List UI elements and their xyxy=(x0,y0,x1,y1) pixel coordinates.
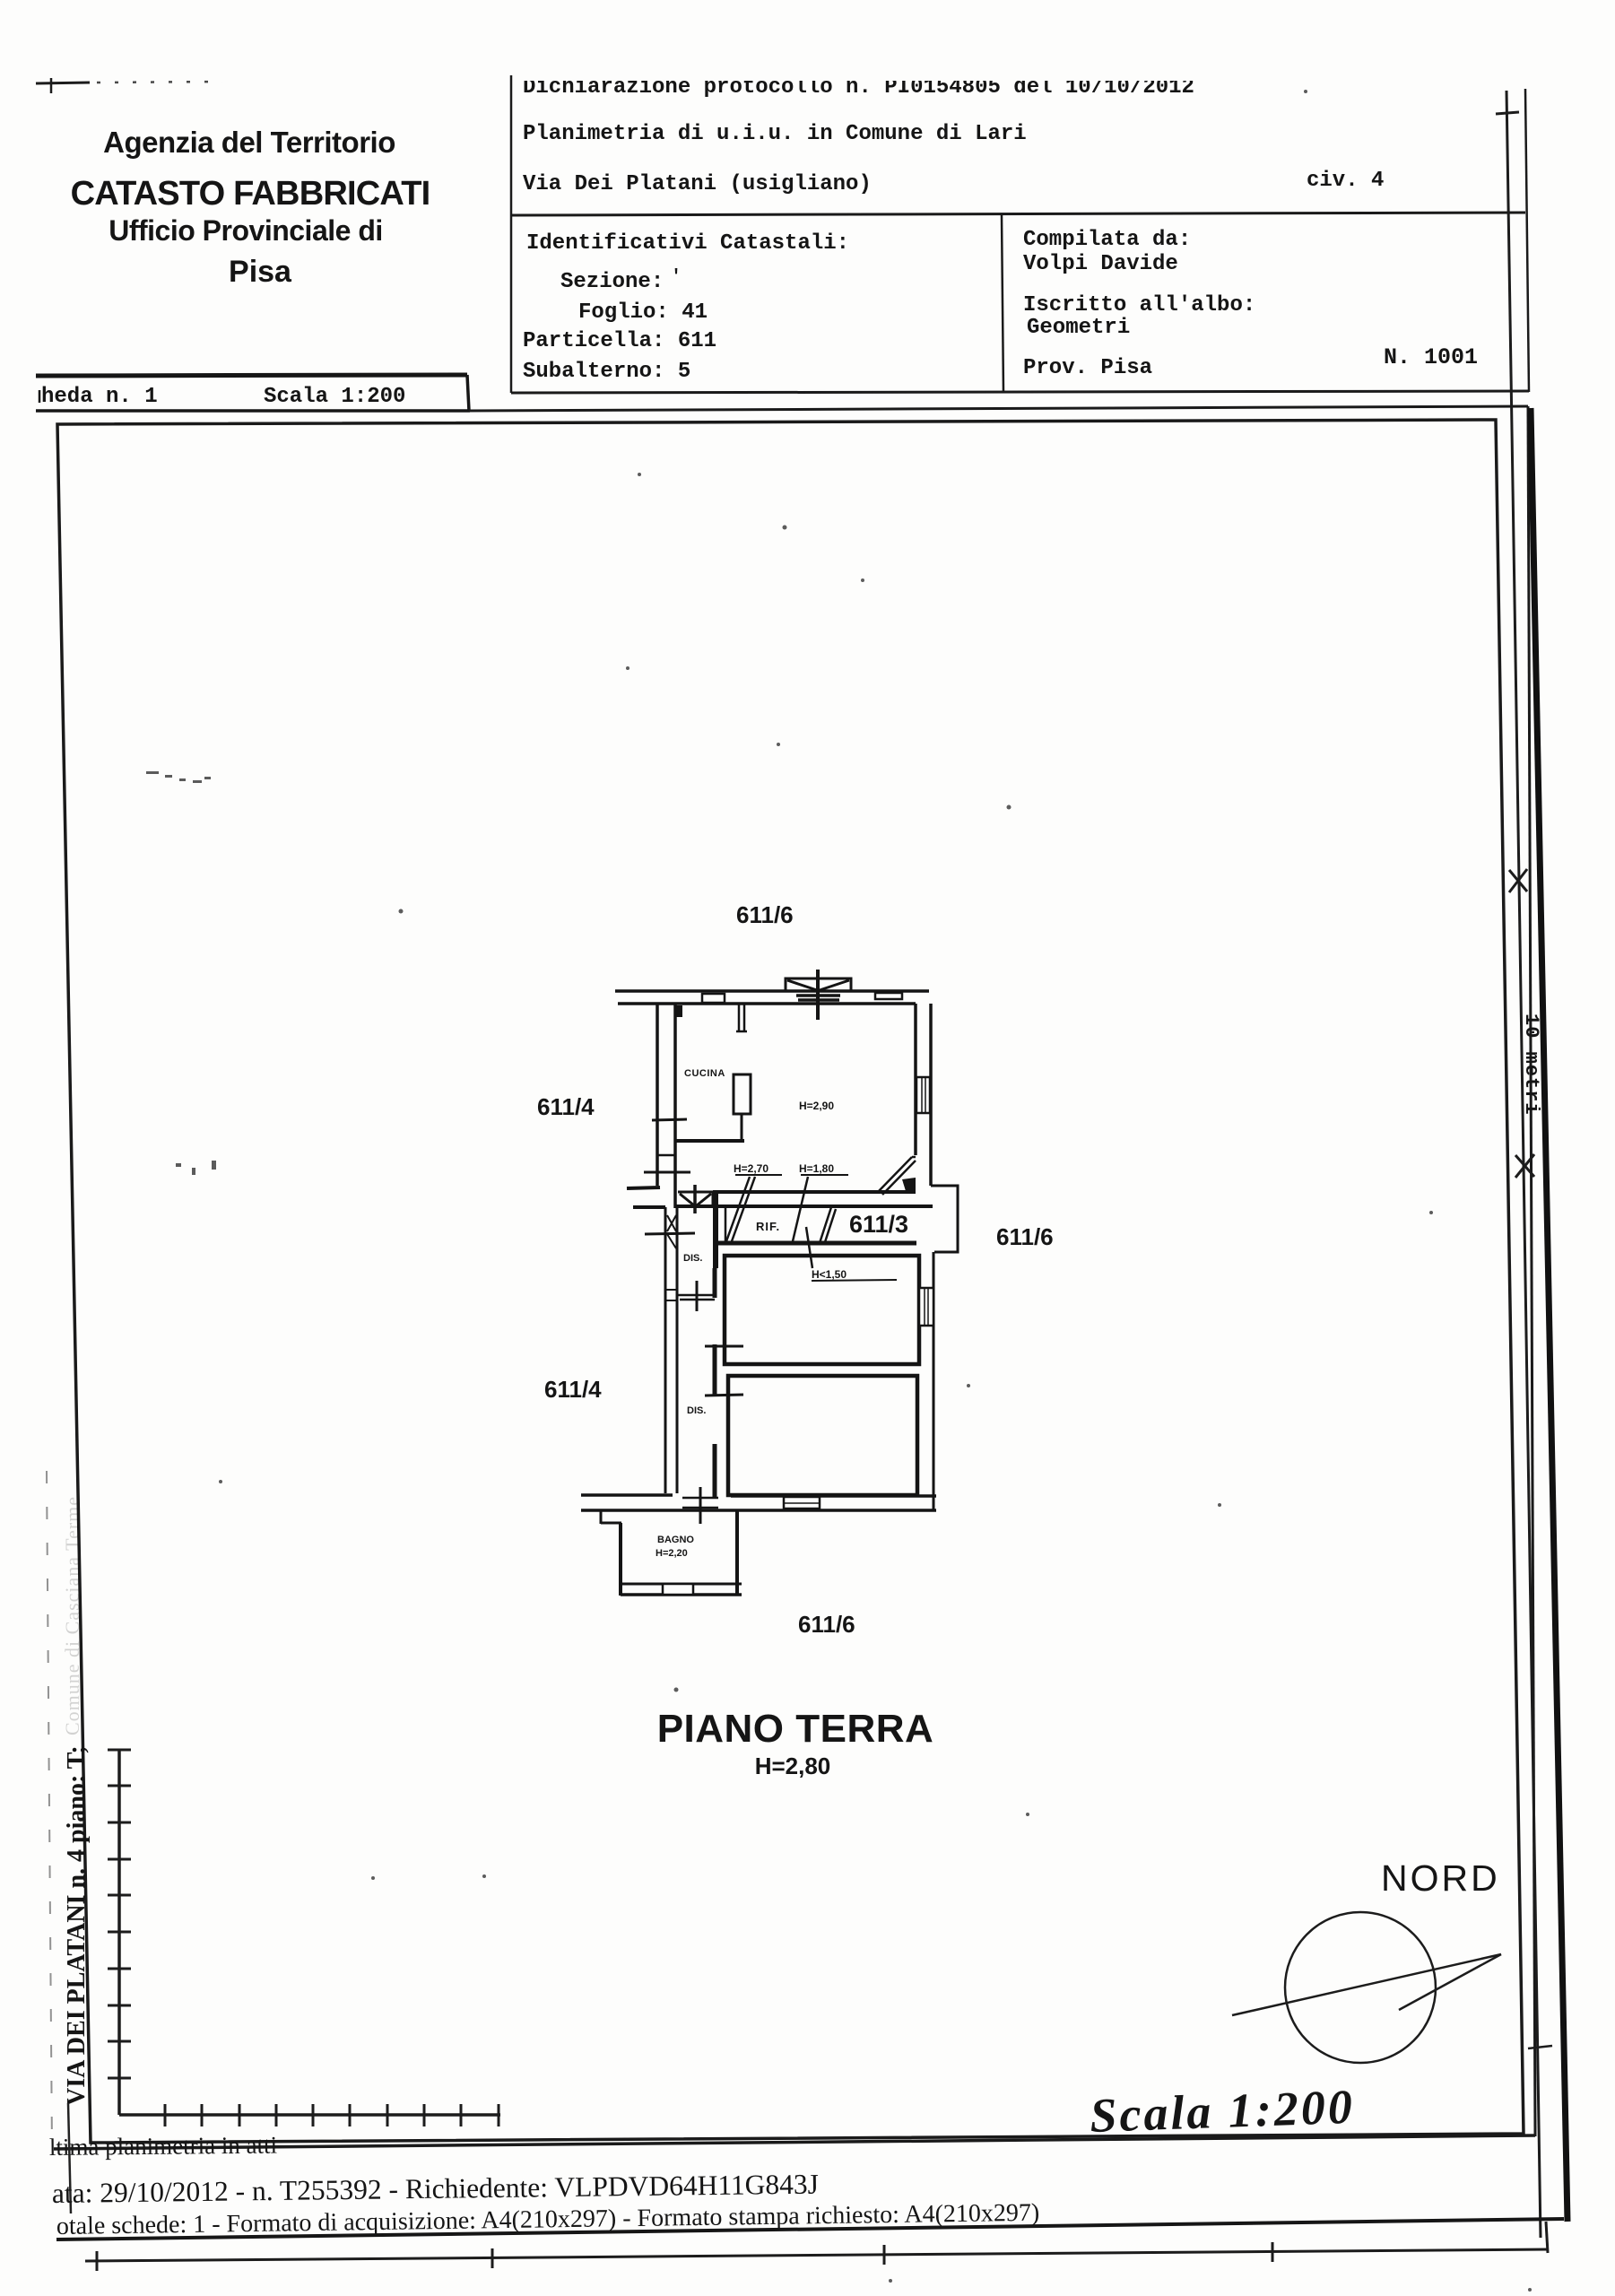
svg-text:H=1,80: H=1,80 xyxy=(799,1162,834,1175)
svg-text:RIF.: RIF. xyxy=(756,1220,780,1233)
svg-text:Particella: 611: Particella: 611 xyxy=(523,329,716,353)
svg-text:civ. 4: civ. 4 xyxy=(1307,169,1384,193)
svg-text:H=2,80: H=2,80 xyxy=(755,1752,831,1779)
svg-text:Volpi Davide: Volpi Davide xyxy=(1023,252,1178,276)
svg-text:ltima planimetria in atti: ltima planimetria in atti xyxy=(49,2132,277,2161)
svg-text:N. 1001: N. 1001 xyxy=(1384,344,1478,370)
svg-text:611/3: 611/3 xyxy=(849,1211,908,1238)
svg-text:611/6: 611/6 xyxy=(798,1611,855,1638)
svg-text:Subalterno: 5: Subalterno: 5 xyxy=(523,360,690,384)
svg-text:611/4: 611/4 xyxy=(537,1093,595,1120)
svg-text:Ufficio Provinciale di: Ufficio Provinciale di xyxy=(109,214,383,247)
svg-text:H=2,90: H=2,90 xyxy=(799,1100,834,1112)
svg-text:VIA DEI PLATANI n. 4 piano: T;: VIA DEI PLATANI n. 4 piano: T; xyxy=(63,1745,91,2106)
svg-text:heda n. 1: heda n. 1 xyxy=(41,385,158,409)
svg-text:Compilata da:: Compilata da: xyxy=(1023,228,1191,252)
svg-text:611/6: 611/6 xyxy=(736,901,794,928)
svg-text:DIS.: DIS. xyxy=(687,1405,706,1416)
svg-text:Agenzia del Territorio: Agenzia del Territorio xyxy=(103,126,395,159)
svg-text:Planimetria di u.i.u. in Comun: Planimetria di u.i.u. in Comune di Lari xyxy=(523,122,1027,146)
svg-text:Prov. Pisa: Prov. Pisa xyxy=(1023,356,1152,380)
svg-text:PIANO TERRA: PIANO TERRA xyxy=(657,1707,934,1751)
svg-text:Iscritto all'albo:: Iscritto all'albo: xyxy=(1023,293,1255,317)
svg-text:CUCINA: CUCINA xyxy=(684,1068,725,1079)
svg-text:H=2,20: H=2,20 xyxy=(656,1548,688,1559)
svg-text:Comune di Casciana Terme: Comune di Casciana Terme xyxy=(61,1496,83,1735)
svg-text:Scala 1:200: Scala 1:200 xyxy=(264,385,405,409)
svg-text:CATASTO FABBRICATI: CATASTO FABBRICATI xyxy=(71,175,430,213)
svg-text:Scala 1:200: Scala 1:200 xyxy=(1089,2080,1355,2143)
svg-text:BAGNO: BAGNO xyxy=(657,1535,694,1545)
svg-text:10 metri: 10 metri xyxy=(1520,1013,1542,1116)
svg-text:H=2,70: H=2,70 xyxy=(734,1162,768,1175)
svg-text:DIS.: DIS. xyxy=(683,1253,702,1264)
svg-text:': ' xyxy=(671,267,682,288)
svg-text:611/4: 611/4 xyxy=(544,1376,602,1403)
svg-text:Pisa: Pisa xyxy=(229,255,292,289)
svg-text:NORD: NORD xyxy=(1381,1857,1500,1899)
svg-text:Identificativi Catastali:: Identificativi Catastali: xyxy=(526,231,849,256)
svg-text:Foglio: 41: Foglio: 41 xyxy=(578,300,708,325)
svg-text:Geometri: Geometri xyxy=(1027,316,1130,340)
svg-text:H<1,50: H<1,50 xyxy=(812,1268,847,1281)
svg-text:Sezione:: Sezione: xyxy=(560,270,664,294)
svg-text:Via Dei Platani (usigliano): Via Dei Platani (usigliano) xyxy=(523,172,872,196)
svg-text:611/6: 611/6 xyxy=(996,1223,1054,1250)
